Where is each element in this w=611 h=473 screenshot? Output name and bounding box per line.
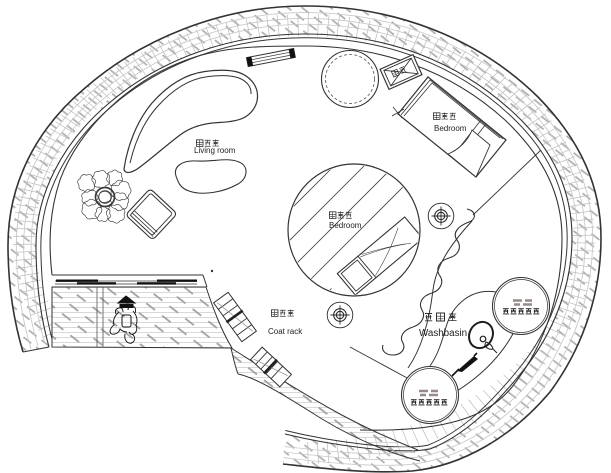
svg-text:Coat rack: Coat rack	[268, 327, 303, 336]
svg-text:Bedroom: Bedroom	[329, 221, 362, 230]
svg-text:Washbasin: Washbasin	[419, 328, 467, 339]
svg-text:Living room: Living room	[194, 146, 236, 155]
svg-text:Bedroom: Bedroom	[434, 124, 467, 133]
